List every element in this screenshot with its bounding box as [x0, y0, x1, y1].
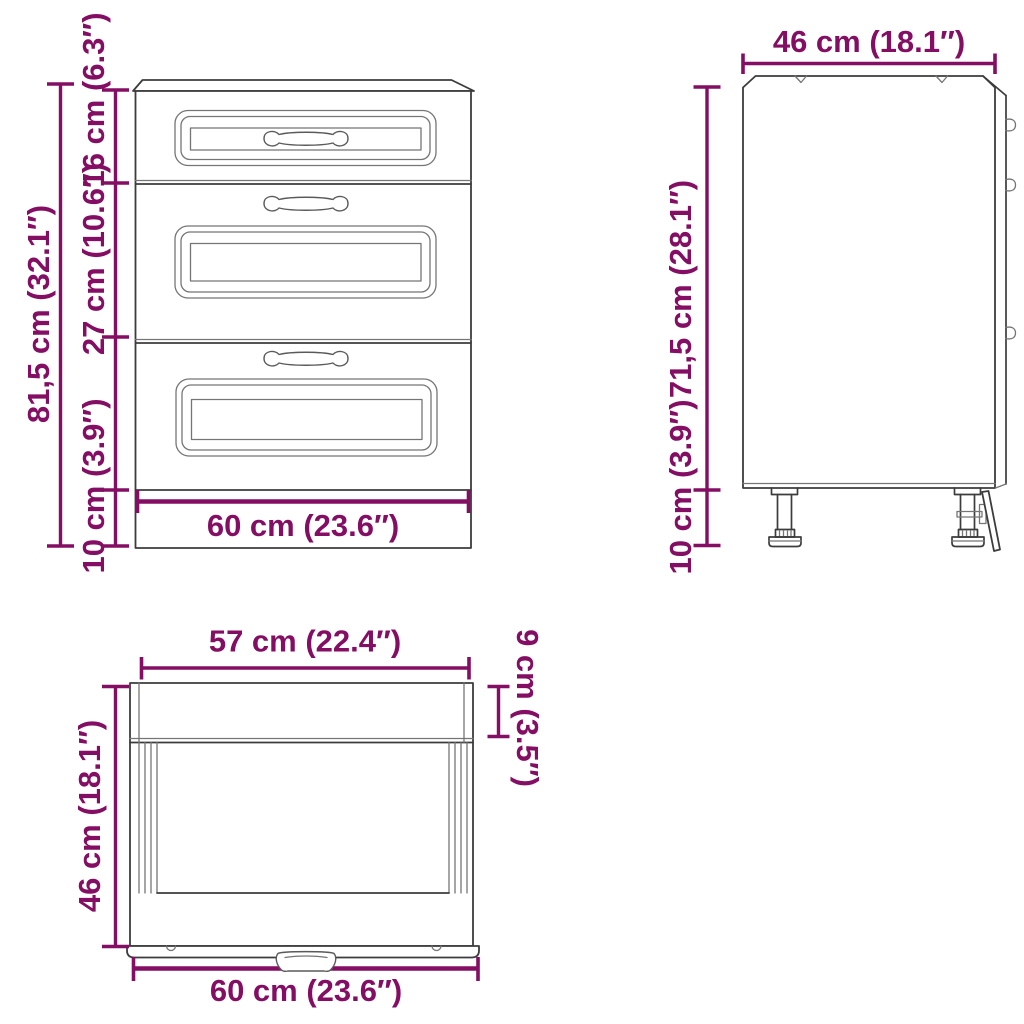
front-drawer-1-handle: [264, 131, 348, 145]
drawer-handle-pin: [1006, 179, 1016, 191]
drawer-handle-pin: [1006, 119, 1016, 131]
side-cabinet-drawing: [743, 76, 1016, 551]
foot-collar: [959, 530, 978, 538]
side-foot-front: [952, 488, 986, 547]
front-middle-drawer-height-label: 27 cm (10.6″): [76, 163, 111, 355]
front-drawer-3-handle: [264, 351, 348, 365]
foot-base: [952, 537, 984, 547]
drawer-handle-pin: [1006, 327, 1016, 339]
front-total-height-label: 81,5 cm (32.1″): [21, 205, 56, 423]
front-drawer-2-handle: [264, 196, 348, 210]
foot-collar-ribs: [963, 531, 975, 537]
side-foot-back: [769, 488, 801, 547]
foot-mount-plate: [955, 488, 981, 495]
foot-base: [769, 537, 801, 547]
front-width-label: 60 cm (23.6″): [207, 508, 399, 543]
side-feet-height-label: 10 cm (3.9″): [663, 399, 698, 574]
side-view: 46 cm (18.1″) 71,5 cm (28.1″) 10 cm (3.9…: [663, 24, 1016, 575]
top-width-label: 60 cm (23.6″): [210, 973, 402, 1008]
side-depth-label: 46 cm (18.1″): [773, 24, 965, 59]
foot-mount-plate: [772, 488, 798, 495]
side-front-lip-bottom: [996, 484, 1007, 488]
top-front-edge-depth-label: 9 cm (3.5″): [510, 629, 545, 787]
front-cabinet-drawing: [133, 80, 474, 548]
foot-collar-ribs: [780, 531, 792, 537]
top-inner-width-label: 57 cm (22.4″): [209, 624, 401, 659]
front-top-drawer-height-label: 16 cm (6.3″): [76, 12, 111, 187]
front-base-height-label: 10 cm (3.9″): [76, 398, 111, 573]
front-view: 81,5 cm (32.1″) 16 cm (6.3″) 27 cm (10.6…: [21, 12, 474, 573]
front-cabinet-top-lip: [133, 80, 474, 91]
top-cabinet-outline: [130, 683, 473, 946]
top-view: 57 cm (22.4″) 9 cm (3.5″) 46 cm (18.1″) …: [72, 624, 545, 1009]
top-drawer-handle: [276, 952, 336, 972]
side-body-height-label: 71,5 cm (28.1″): [663, 180, 698, 398]
foot-collar: [776, 530, 795, 538]
top-depth-label: 46 cm (18.1″): [72, 720, 107, 912]
foot-stem: [778, 495, 792, 530]
side-cabinet-body: [743, 76, 995, 488]
top-cabinet-drawing: [127, 683, 479, 958]
diagram-canvas: 81,5 cm (32.1″) 16 cm (6.3″) 27 cm (10.6…: [0, 0, 1024, 1024]
cabinet-dimension-diagram: 81,5 cm (32.1″) 16 cm (6.3″) 27 cm (10.6…: [0, 0, 1024, 1024]
